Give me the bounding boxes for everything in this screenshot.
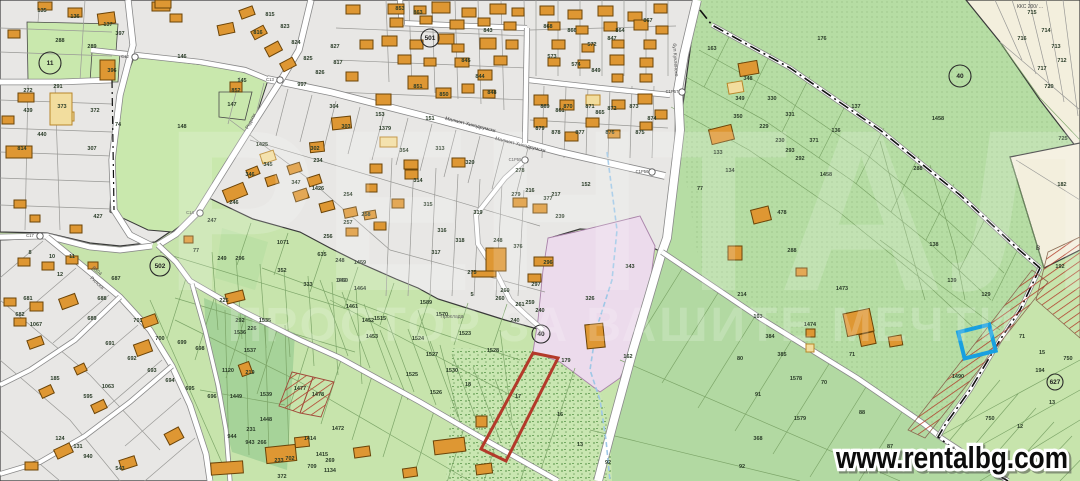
svg-text:373: 373 [57, 104, 66, 110]
svg-text:823: 823 [280, 24, 289, 30]
svg-text:ККС 200/ ...: ККС 200/ ... [1017, 4, 1043, 10]
svg-text:www.rentalbg.com: www.rentalbg.com [835, 440, 1068, 475]
svg-text:814: 814 [17, 146, 27, 152]
svg-text:1527: 1527 [426, 352, 438, 358]
svg-text:162: 162 [623, 354, 632, 360]
svg-text:843: 843 [483, 28, 492, 34]
svg-text:1477: 1477 [294, 386, 306, 392]
svg-text:11: 11 [47, 60, 54, 67]
svg-text:501: 501 [425, 35, 436, 42]
svg-text:944: 944 [227, 434, 237, 440]
svg-text:307: 307 [87, 146, 96, 152]
svg-text:40: 40 [956, 73, 964, 80]
svg-text:696: 696 [207, 394, 216, 400]
svg-text:176: 176 [817, 36, 826, 42]
svg-text:826: 826 [315, 70, 324, 76]
svg-text:396: 396 [107, 68, 116, 74]
svg-text:715: 715 [1027, 10, 1036, 16]
svg-text:940: 940 [83, 454, 92, 460]
svg-text:698: 698 [195, 346, 204, 352]
svg-text:847: 847 [607, 36, 616, 42]
svg-text:864: 864 [615, 28, 625, 34]
svg-text:1579: 1579 [794, 416, 806, 422]
svg-text:91: 91 [755, 392, 761, 398]
svg-text:1530: 1530 [446, 368, 458, 374]
svg-text:397: 397 [115, 31, 124, 37]
svg-text:716: 716 [1017, 36, 1026, 42]
svg-text:573: 573 [547, 54, 556, 60]
svg-text:1414: 1414 [304, 436, 317, 442]
svg-text:844: 844 [475, 74, 485, 80]
svg-text:368: 368 [753, 436, 762, 442]
svg-text:701: 701 [133, 318, 142, 324]
svg-text:815: 815 [265, 12, 274, 18]
svg-text:1067: 1067 [30, 322, 42, 328]
svg-text:289: 289 [87, 44, 96, 50]
svg-text:824: 824 [291, 40, 301, 46]
svg-text:714: 714 [1041, 28, 1051, 34]
svg-text:849: 849 [591, 68, 600, 74]
svg-text:702: 702 [285, 456, 294, 462]
svg-text:8: 8 [28, 250, 31, 256]
svg-text:124: 124 [55, 436, 65, 442]
svg-text:233: 233 [274, 458, 283, 464]
svg-text:С17: С17 [26, 233, 34, 238]
svg-text:845: 845 [461, 58, 470, 64]
svg-text:11: 11 [69, 254, 75, 260]
svg-text:695: 695 [185, 386, 194, 392]
svg-text:694: 694 [165, 378, 175, 384]
svg-text:10: 10 [49, 254, 55, 260]
svg-text:693: 693 [147, 368, 156, 374]
svg-text:291: 291 [53, 84, 62, 90]
svg-text:12: 12 [57, 272, 63, 278]
svg-text:827: 827 [330, 44, 339, 50]
svg-text:572: 572 [587, 42, 596, 48]
svg-text:688: 688 [97, 296, 106, 302]
svg-text:146: 146 [177, 54, 186, 60]
svg-text:816: 816 [253, 30, 262, 36]
svg-text:266: 266 [257, 440, 266, 446]
svg-text:1448: 1448 [260, 417, 272, 423]
svg-text:1449: 1449 [230, 394, 242, 400]
svg-text:137: 137 [103, 22, 112, 28]
svg-text:13: 13 [1049, 400, 1055, 406]
svg-text:ПРОСТОР ЗА ВАШИТЕ МЕЧТИ: ПРОСТОР ЗА ВАШИТЕ МЕЧТИ [228, 299, 1016, 352]
svg-text:15: 15 [1039, 350, 1045, 356]
svg-text:681: 681 [23, 296, 32, 302]
svg-text:439: 439 [23, 108, 32, 114]
svg-text:372: 372 [90, 108, 99, 114]
svg-text:272: 272 [23, 88, 32, 94]
svg-text:92: 92 [739, 464, 745, 470]
svg-text:74: 74 [115, 122, 122, 128]
svg-text:943: 943 [245, 440, 254, 446]
svg-text:372: 372 [277, 474, 286, 480]
svg-text:71: 71 [849, 352, 855, 358]
svg-text:866: 866 [567, 28, 576, 34]
svg-text:70: 70 [821, 380, 827, 386]
svg-text:1526: 1526 [430, 390, 442, 396]
svg-text:194: 194 [1035, 368, 1045, 374]
svg-text:88: 88 [859, 410, 865, 416]
svg-text:699: 699 [177, 340, 186, 346]
svg-text:1063: 1063 [102, 384, 114, 390]
svg-text:288: 288 [55, 38, 64, 44]
svg-text:867: 867 [643, 18, 652, 24]
svg-text:863: 863 [413, 10, 422, 16]
svg-text:219: 219 [245, 370, 254, 376]
svg-text:750: 750 [1063, 356, 1072, 362]
svg-text:12: 12 [1017, 424, 1023, 430]
svg-text:682: 682 [15, 312, 24, 318]
svg-text:713: 713 [1051, 44, 1060, 50]
svg-text:92: 92 [605, 460, 611, 466]
svg-text:440: 440 [37, 132, 46, 138]
svg-text:16: 16 [557, 412, 563, 418]
svg-text:687: 687 [111, 276, 120, 282]
svg-text:717: 717 [1037, 66, 1046, 72]
svg-text:1490: 1490 [952, 374, 964, 380]
svg-text:1478: 1478 [312, 392, 324, 398]
svg-text:231: 231 [246, 427, 255, 433]
svg-text:817: 817 [333, 60, 342, 66]
svg-text:825: 825 [303, 56, 312, 62]
svg-text:595: 595 [83, 394, 92, 400]
svg-text:385: 385 [777, 352, 786, 358]
svg-text:750: 750 [985, 416, 994, 422]
svg-text:427: 427 [93, 214, 102, 220]
svg-text:868: 868 [543, 24, 552, 30]
svg-text:1120: 1120 [222, 368, 234, 374]
svg-text:709: 709 [307, 464, 316, 470]
svg-text:163: 163 [707, 46, 716, 52]
svg-text:1472: 1472 [332, 426, 344, 432]
svg-text:627: 627 [1050, 379, 1061, 386]
svg-text:691: 691 [105, 341, 114, 347]
svg-text:269: 269 [325, 458, 334, 464]
svg-text:13: 13 [577, 442, 583, 448]
svg-text:136: 136 [70, 14, 79, 20]
svg-text:1525: 1525 [406, 372, 418, 378]
svg-text:135: 135 [37, 8, 46, 14]
svg-text:574: 574 [571, 62, 581, 68]
svg-text:131: 131 [73, 444, 82, 450]
svg-text:692: 692 [127, 356, 136, 362]
svg-text:1539: 1539 [260, 392, 272, 398]
svg-text:179: 179 [561, 358, 570, 364]
svg-text:689: 689 [87, 316, 96, 322]
svg-text:С12: С12 [121, 54, 129, 59]
svg-text:543: 543 [115, 466, 124, 472]
svg-text:853: 853 [395, 6, 404, 12]
svg-text:18: 18 [465, 382, 471, 388]
svg-text:185: 185 [50, 376, 59, 382]
svg-text:1134: 1134 [324, 468, 337, 474]
svg-text:712: 712 [1057, 58, 1066, 64]
svg-text:80: 80 [737, 356, 743, 362]
svg-text:17: 17 [515, 394, 521, 400]
svg-text:1578: 1578 [790, 376, 802, 382]
